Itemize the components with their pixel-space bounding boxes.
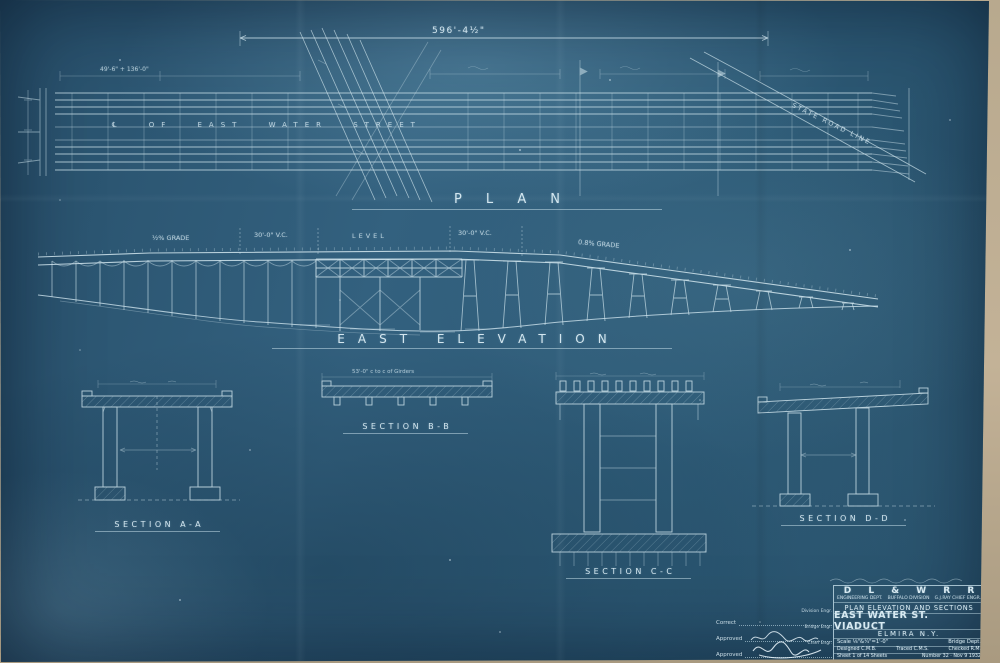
scale-row: Scale ⅛"&¼"=1'-0" Bridge Dept. xyxy=(834,638,984,646)
sheet-number-row: Sheet 1 of 14 Sheets Number 32 · Nov 9 1… xyxy=(834,653,984,660)
sheet-count: Sheet 1 of 14 Sheets xyxy=(837,654,887,659)
engineering-dept: ENGINEERING DEPT. xyxy=(837,596,882,601)
title-block-header: D L & W R R ENGINEERING DEPT. BUFFALO DI… xyxy=(834,586,984,602)
section-b-note: 53'-0" c to c of Girders xyxy=(352,369,414,375)
drawing-title: EAST WATER ST. VIADUCT xyxy=(834,613,984,629)
elevation-title: EAST ELEVATION xyxy=(272,332,672,349)
section-a-drawing xyxy=(78,380,240,500)
section-d-label: SECTION D-D xyxy=(781,514,906,526)
top-dimension-line xyxy=(240,31,768,46)
bridge-dept: Bridge Dept. xyxy=(948,639,981,645)
section-a-label: SECTION A-A xyxy=(95,520,220,532)
approvals-block: Correct Division Engr. Approved Bridge E… xyxy=(716,610,832,660)
plan-station-marks xyxy=(580,60,725,196)
drawing-location: ELMIRA N.Y. xyxy=(834,629,984,638)
section-b-label: SECTION B-B xyxy=(343,422,468,434)
drawing-number: Number 32 · Nov 9 1932 xyxy=(922,654,981,659)
section-b-drawing xyxy=(322,373,492,405)
section-c-label: SECTION C-C xyxy=(566,567,691,579)
level-label: LEVEL xyxy=(352,232,387,240)
division-engineer-title: Division Engr. xyxy=(801,609,832,614)
approved-chief-row: Approved Chief Engr. xyxy=(716,642,832,658)
plan-dim-ticks xyxy=(60,67,868,82)
approved2-label: Approved xyxy=(716,652,742,658)
correct-row: Correct Division Engr. xyxy=(716,610,832,626)
traced-by: Traced C.M.S. xyxy=(896,647,928,652)
railroad-name: D L & W R R xyxy=(837,587,982,596)
top-dimension-label: 596'-4½" xyxy=(432,26,486,36)
plan-street-label: ℄ OF EAST WATER STREET xyxy=(112,121,422,129)
plan-drawing xyxy=(18,88,909,180)
elevation-ground xyxy=(38,295,878,335)
title-block: D L & W R R ENGINEERING DEPT. BUFFALO DI… xyxy=(833,585,985,661)
approved-bridge-row: Approved Bridge Engr. xyxy=(716,626,832,642)
grade-left-label: ½% GRADE xyxy=(152,234,189,242)
section-d-drawing xyxy=(752,380,935,506)
chief-engineer-signature-line: Chief Engr. xyxy=(745,645,832,658)
plan-title: PLAN xyxy=(352,192,662,210)
plan-pier-ticks xyxy=(72,93,858,170)
vc-right-label: 30'-0" V.C. xyxy=(458,229,492,237)
designed-by: Designed C.M.B. xyxy=(837,647,876,652)
chief-engineer-signature xyxy=(749,641,827,661)
blueprint-sheet: 596'-4½" 49'-6" + 136'-0" ℄ OF EAST WATE… xyxy=(0,0,1000,663)
section-c-drawing xyxy=(552,372,706,566)
plan-approach-dim-label: 49'-6" + 136'-0" xyxy=(100,66,149,73)
chief-engineer: G.J.RAY CHIEF ENGR. xyxy=(935,596,981,601)
checked-by: Checked R.M. xyxy=(949,647,981,652)
marginal-note-scribble xyxy=(828,575,982,585)
elevation-deck xyxy=(38,248,878,307)
vc-left-label: 30'-0" V.C. xyxy=(254,231,288,239)
scale-value: Scale ⅛"&¼"=1'-0" xyxy=(837,639,888,645)
plan-diagonal-crossing xyxy=(300,28,441,202)
credits-row: Designed C.M.B. Traced C.M.S. Checked R.… xyxy=(834,646,984,653)
elevation-truss-span xyxy=(316,259,462,331)
division: BUFFALO DIVISION xyxy=(888,596,930,601)
